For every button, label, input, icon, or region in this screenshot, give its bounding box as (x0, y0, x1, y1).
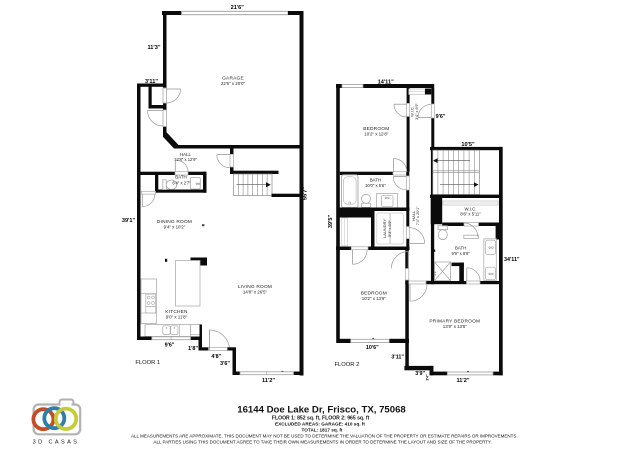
svg-text:1'8": 1'8" (188, 346, 198, 352)
svg-text:FLOOR 1: FLOOR 1 (135, 360, 160, 366)
svg-text:11'2": 11'2" (456, 378, 469, 384)
svg-text:11'3": 11'3" (147, 45, 160, 51)
svg-text:4'8": 4'8" (211, 354, 221, 360)
svg-text:12'8" x 12'9": 12'8" x 12'9" (174, 157, 197, 162)
svg-text:W.I.C.: W.I.C. (410, 106, 415, 117)
svg-text:39'5": 39'5" (328, 215, 334, 229)
svg-text:10'2" x 12'8": 10'2" x 12'8" (364, 132, 389, 137)
svg-text:HALL: HALL (411, 210, 416, 221)
svg-text:9'6": 9'6" (436, 114, 446, 120)
svg-text:13'9" x 13'5": 13'9" x 13'5" (443, 324, 468, 329)
svg-text:16144 Doe Lake Dr, Frisco, TX,: 16144 Doe Lake Dr, Frisco, TX, 75068 (237, 404, 406, 415)
svg-text:55'7": 55'7" (303, 187, 309, 201)
svg-text:7'4" x 20'1": 7'4" x 20'1" (416, 206, 420, 225)
svg-text:LAUNDRY: LAUNDRY (382, 219, 387, 238)
svg-text:BATH: BATH (455, 246, 466, 251)
svg-text:14'8" x 26'5": 14'8" x 26'5" (243, 290, 268, 295)
svg-text:9'4" x 10'2": 9'4" x 10'2" (164, 225, 186, 230)
svg-text:3'11": 3'11" (391, 355, 404, 361)
svg-text:3'6": 3'6" (220, 361, 230, 367)
svg-text:EXCLUDED AREAS: GARAGE: 410 sq: EXCLUDED AREAS: GARAGE: 410 sq. ft (275, 422, 365, 427)
svg-text:39'1": 39'1" (122, 218, 136, 224)
svg-text:14'11": 14'11" (378, 79, 394, 85)
svg-text:10'2" x 13'9": 10'2" x 13'9" (362, 296, 387, 301)
svg-text:FLOOR 2: FLOOR 2 (334, 362, 359, 368)
svg-text:ALL MEASUREMENTS ARE APPROXIMA: ALL MEASUREMENTS ARE APPROXIMATE. THIS D… (131, 434, 518, 439)
svg-text:9'0" x 11'8": 9'0" x 11'8" (166, 315, 188, 320)
svg-text:22'6" x 20'0": 22'6" x 20'0" (221, 81, 246, 86)
svg-text:9'6": 9'6" (165, 343, 175, 349)
svg-text:11'2": 11'2" (262, 378, 275, 384)
svg-text:3D CASAS: 3D CASAS (33, 440, 80, 446)
svg-text:10'0" x 5'6": 10'0" x 5'6" (365, 183, 386, 188)
svg-text:10'6": 10'6" (366, 345, 379, 351)
svg-text:10'5": 10'5" (461, 142, 475, 148)
svg-text:3'4": 3'4" (426, 374, 430, 381)
svg-text:3'9": 3'9" (415, 371, 425, 377)
svg-text:5'3" x 5'9": 5'3" x 5'9" (388, 220, 392, 237)
svg-text:TOTAL: 1817 sq. ft: TOTAL: 1817 sq. ft (302, 428, 343, 433)
svg-text:BATH: BATH (175, 174, 186, 179)
svg-text:21'6": 21'6" (231, 5, 245, 11)
svg-text:6'4" x 2'7": 6'4" x 2'7" (172, 181, 191, 186)
svg-text:9'9" x 8'9": 9'9" x 8'9" (452, 251, 471, 256)
svg-text:3'4" x 6'9": 3'4" x 6'9" (415, 103, 419, 120)
svg-text:ALL PARTIES USING THIS DOCUMEN: ALL PARTIES USING THIS DOCUMENT AGREE TO… (153, 439, 491, 444)
svg-text:34'11": 34'11" (504, 257, 520, 263)
svg-text:BATH: BATH (370, 178, 381, 183)
svg-text:3'11": 3'11" (145, 79, 158, 85)
svg-text:8'6" x 5'11": 8'6" x 5'11" (460, 212, 481, 217)
